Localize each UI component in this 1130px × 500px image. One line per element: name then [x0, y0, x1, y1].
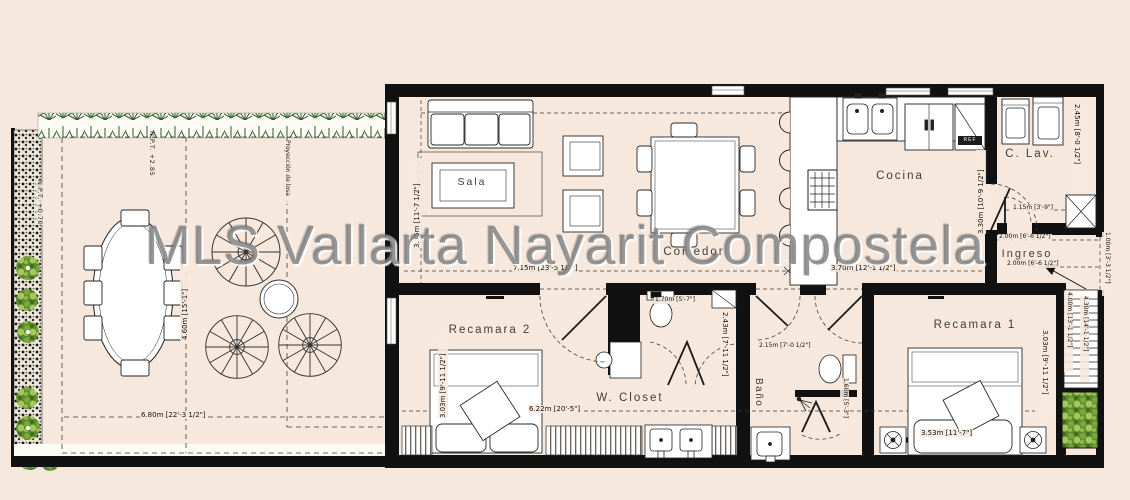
dim-wc-depth: 2.43m [7'-11 1/2"] — [720, 312, 730, 400]
ref-appliance-tag: REF — [958, 136, 982, 145]
dim-entry-side: 1.00m [3'-3 1/2"] — [1102, 232, 1111, 296]
bath-sink — [751, 427, 790, 462]
room-label-c-lav: C. Lav. — [990, 148, 1070, 160]
dim-bedroom2-depth: 3.03m [9'-11 1/2"] — [438, 334, 448, 418]
level-terrace: N.P.T. +2.85 — [148, 131, 156, 176]
toilet-bath — [819, 355, 856, 383]
dim-entry-a: 2.00m [6'-6 1/2"] — [998, 234, 1052, 241]
floor-plan-drawing — [0, 0, 1130, 500]
room-label-recamara1: Recamara 1 — [905, 319, 1045, 331]
armchair — [563, 136, 603, 232]
dim-laundry-door: 1.15m [3'-9"] — [1012, 205, 1054, 212]
room-label-ingreso: Ingreso — [988, 248, 1066, 260]
closet-desk — [596, 342, 641, 378]
wc-shelf — [712, 290, 736, 308]
dim-bedroom1-width: 3.53m [11'-7"] — [920, 429, 973, 437]
dim-stair-b: 4.30m [14'-1 1/2"] — [1080, 296, 1089, 382]
dim-laundry-depth: 2.45m [8'-0 1/2"] — [1072, 104, 1082, 192]
closet-vanity — [645, 425, 712, 458]
room-label-sala: Sala — [436, 176, 508, 188]
dim-closet-run: 6.22m [20'-5"] — [528, 405, 581, 413]
round-side-table — [260, 280, 298, 318]
room-label-w-closet: W. Closet — [575, 392, 685, 404]
dim-bath-width: 2.15m [7'-0 1/2"] — [758, 343, 812, 350]
room-label-comedor: Comedor — [648, 246, 740, 258]
dim-bedroom1-depth: 3.03m [9'-11 1/2"] — [1040, 330, 1050, 422]
dim-kitchen-width: 3.70m [12'-1 1/2"] — [830, 264, 897, 272]
washer — [1002, 99, 1029, 144]
bed-1 — [908, 348, 1022, 455]
dryer — [1033, 97, 1063, 145]
laundry-room — [1002, 97, 1063, 145]
shower — [797, 397, 830, 432]
level-garden: N.P.T. +0.70 — [36, 180, 44, 225]
terrace-bottom-wall — [12, 456, 390, 467]
dim-living-depth: 3.55m [11'-7 1/2"] — [412, 158, 422, 248]
dim-wc-width: 1.70m [5'-7"] — [654, 297, 696, 304]
room-label-cocina: Cocina — [850, 170, 950, 182]
room-label-bano: Baño — [753, 378, 764, 424]
dim-stair-a: 4.00m [13'-1 1/2"] — [1064, 292, 1073, 372]
garden-strip — [1062, 392, 1098, 448]
terrace-chair — [84, 246, 102, 270]
dim-entry-b: 2.00m [6'-6 1/2"] — [1006, 261, 1060, 268]
dim-terrace-width: 6.80m [22'-3 1/2"] — [140, 411, 207, 419]
dim-living-width: 7.15m [23'-5 1/2"] — [512, 264, 579, 272]
room-label-recamara2: Recamara 2 — [420, 324, 560, 336]
floor-plan-page: Sala Comedor Cocina C. Lav. Ingreso Reca… — [0, 0, 1130, 500]
entry-stair-box — [1066, 195, 1096, 228]
hedge-row — [38, 113, 390, 138]
dim-bath-depth: 1.60m [5'-3"] — [840, 378, 849, 434]
terrace-walk-strip — [14, 444, 388, 456]
sofa — [428, 100, 533, 148]
dining-table — [637, 123, 755, 247]
dim-kitchen-depth: 3.30m [10'-9 1/2"] — [976, 150, 986, 234]
double-sink — [843, 94, 897, 140]
tv-bedroom2 — [458, 288, 530, 295]
living-room-furniture — [418, 100, 755, 247]
terrace-palm-planters — [206, 218, 342, 378]
dim-terrace-depth: 4.60m [15'-1"] — [180, 250, 190, 340]
bar-stools — [780, 112, 791, 246]
kitchen — [780, 94, 986, 285]
tv-bedroom1 — [912, 288, 972, 295]
refrigerator — [905, 104, 953, 150]
stove — [808, 170, 837, 210]
note-slab-projection: Proyección de losa — [284, 140, 291, 204]
terrace-dining-table — [84, 210, 182, 376]
